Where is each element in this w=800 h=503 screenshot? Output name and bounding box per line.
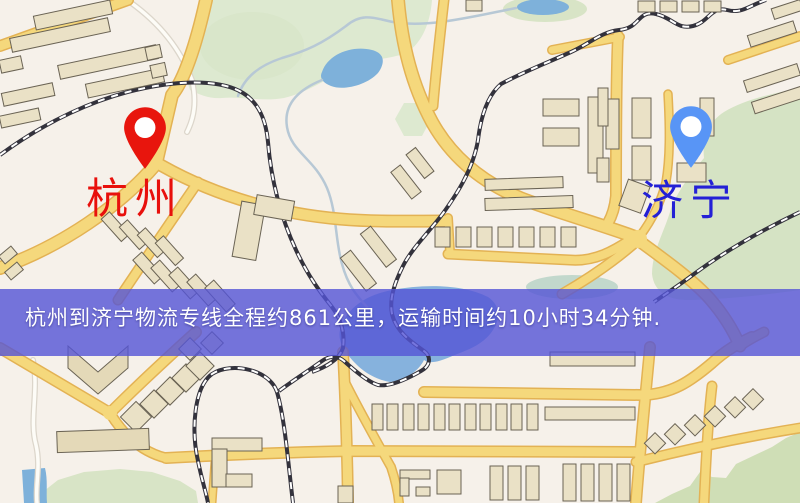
origin-pin[interactable]: [123, 107, 167, 169]
map-screenshot: 杭州 济宁 杭州到济宁物流专线全程约861公里，运输时间约10小时34分钟.: [0, 0, 800, 503]
route-info-text: 杭州到济宁物流专线全程约861公里，运输时间约10小时34分钟.: [25, 306, 661, 330]
route-info-banner: 杭州到济宁物流专线全程约861公里，运输时间约10小时34分钟.: [0, 289, 800, 356]
destination-pin-hole: [681, 116, 702, 137]
destination-pin[interactable]: [669, 106, 713, 168]
origin-city-label: 杭州: [86, 178, 184, 220]
map-canvas[interactable]: [0, 0, 800, 503]
origin-pin-hole: [135, 117, 156, 138]
destination-city-label: 济宁: [641, 180, 739, 222]
